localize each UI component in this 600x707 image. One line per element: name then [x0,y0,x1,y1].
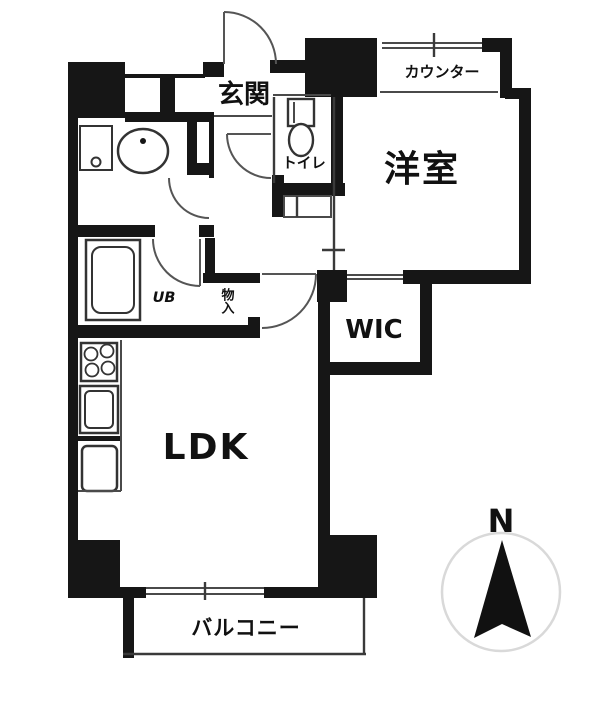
genkan-label: 玄関 [218,79,270,110]
wall-segment [123,590,134,658]
wall-segment [205,238,215,274]
floor-plan-svg: N 玄関 トイレ カウンター 洋室 UB 物入 WIC LDK バルコニー [0,0,600,707]
wall-segment [187,122,197,166]
unit-bath-label: UB [153,290,176,306]
wall-segment [68,325,250,338]
bath-door-swing-arc [153,239,200,286]
counter-label: カウンター [404,63,479,81]
wall-segment [209,122,214,178]
wall-segment [68,225,155,237]
ldk-label: LDK [163,427,250,468]
compass-north-label: N [488,502,515,540]
kitchen-sink-basin-icon [85,391,113,428]
toilet-door-swing-arc [227,134,271,178]
wall-segment [199,225,214,237]
burner-icon [101,345,114,358]
wall-segment [264,587,322,598]
kitchen-cabinet-icon [82,446,117,491]
wall-segment [318,362,432,375]
wall-segment [305,38,377,97]
drain-icon [92,158,101,167]
toilet-tank-icon [288,99,314,126]
ldk-door-swing-arc [262,274,316,328]
wall-segment [420,272,432,375]
wall-segment [70,540,120,598]
burner-icon [85,348,98,361]
wall-segment [248,317,260,338]
wall-segment [284,183,345,196]
washroom-door-swing-arc [169,178,209,218]
wall-segment [519,88,531,284]
wall-segment [160,74,175,118]
washbasin-icon [118,129,168,173]
bathtub-inner-icon [92,247,134,313]
balcony-label: バルコニー [191,616,301,640]
compass: N [442,502,560,651]
toilet-cabinet [284,196,331,217]
storage-label: 物入 [219,287,235,314]
toilet-bowl-icon [289,124,313,156]
wall-segment [318,535,377,598]
wall-segment [318,375,330,540]
wall-segment [125,112,214,122]
floor-plan-image: N 玄関 トイレ カウンター 洋室 UB 物入 WIC LDK バルコニー [0,0,600,707]
burner-icon [102,362,115,375]
toilet-label: トイレ [282,156,326,172]
burner-icon [86,364,99,377]
wall-segment [203,62,224,77]
wall-segment [203,273,260,283]
wic-label: WIC [345,315,402,345]
wall-segment [187,163,209,175]
kitchen-counter-divider [78,436,122,441]
wall-segment [318,270,330,375]
entrance-door-swing-arc [224,12,276,64]
western-room-label: 洋室 [384,149,460,190]
faucet-dot-icon [140,138,146,144]
